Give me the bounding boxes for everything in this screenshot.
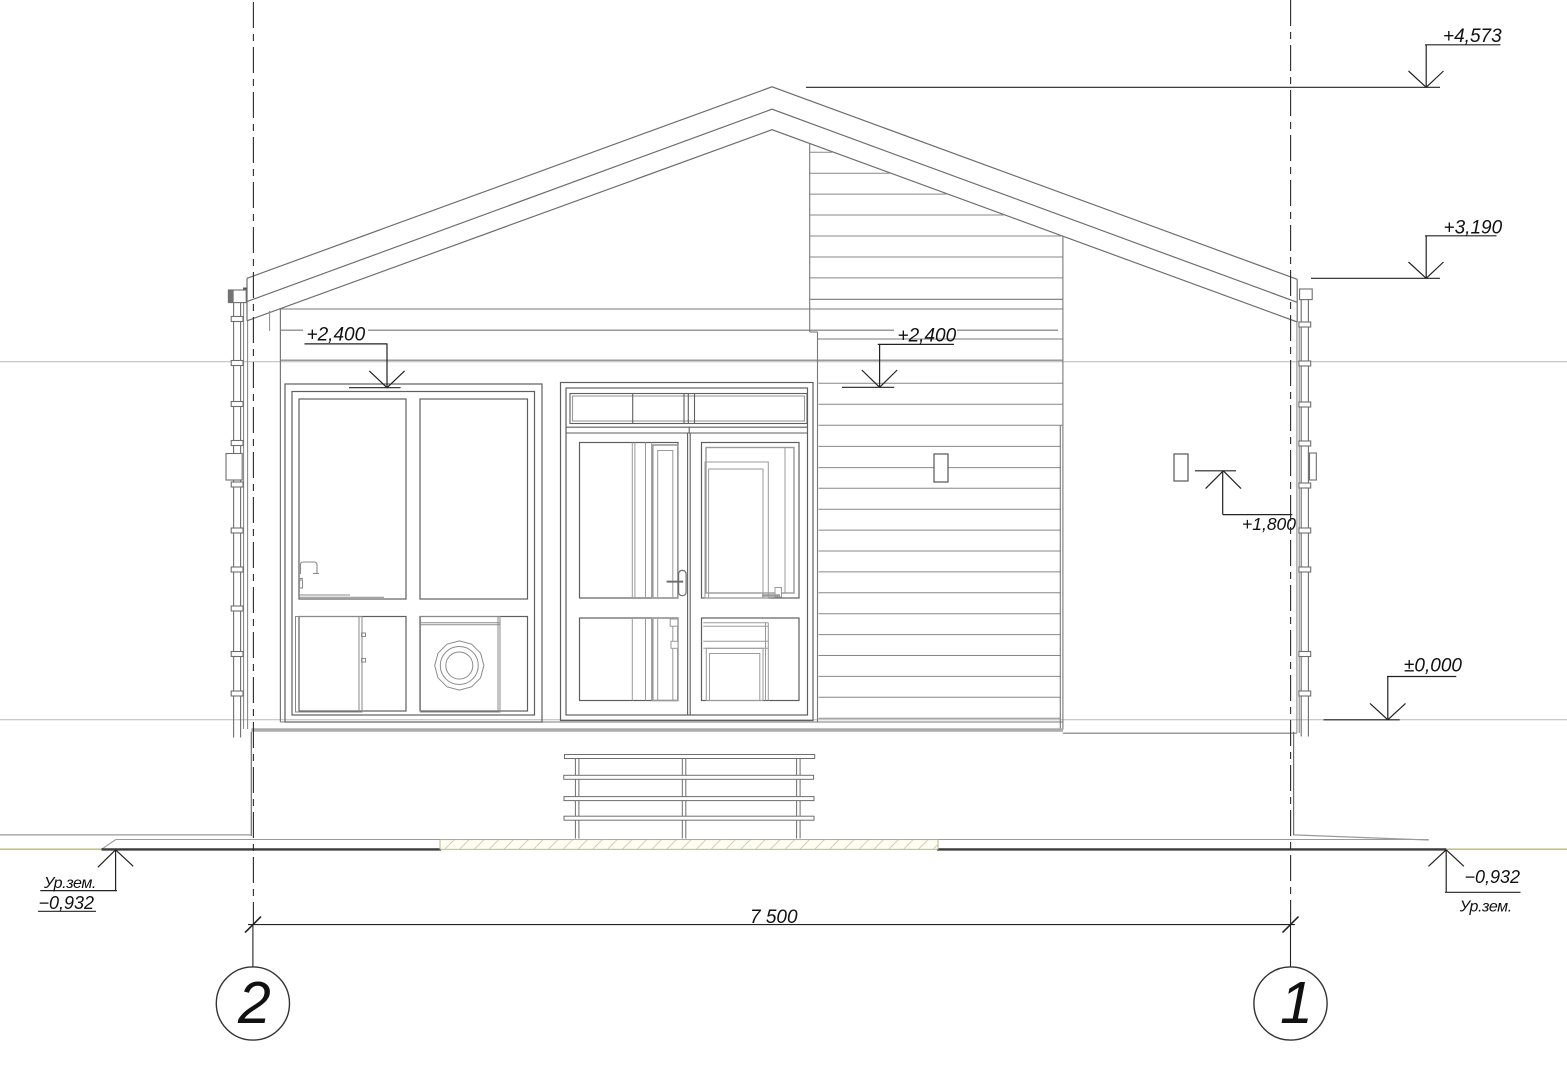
svg-text:+2,400: +2,400 <box>307 325 366 346</box>
svg-text:±0,000: ±0,000 <box>1404 656 1462 677</box>
svg-text:−0,932: −0,932 <box>1465 867 1521 887</box>
svg-text:7 500: 7 500 <box>750 907 798 928</box>
svg-text:−0,932: −0,932 <box>39 893 95 913</box>
svg-text:+1,800: +1,800 <box>1242 514 1296 534</box>
svg-text:Ур.зем.: Ур.зем. <box>43 875 96 892</box>
svg-text:1: 1 <box>1280 970 1313 1036</box>
svg-text:+3,190: +3,190 <box>1444 218 1503 239</box>
svg-text:+2,400: +2,400 <box>898 326 957 347</box>
svg-text:2: 2 <box>237 970 271 1036</box>
svg-text:Ур.зем.: Ур.зем. <box>1459 899 1512 916</box>
svg-text:+4,573: +4,573 <box>1443 26 1502 47</box>
